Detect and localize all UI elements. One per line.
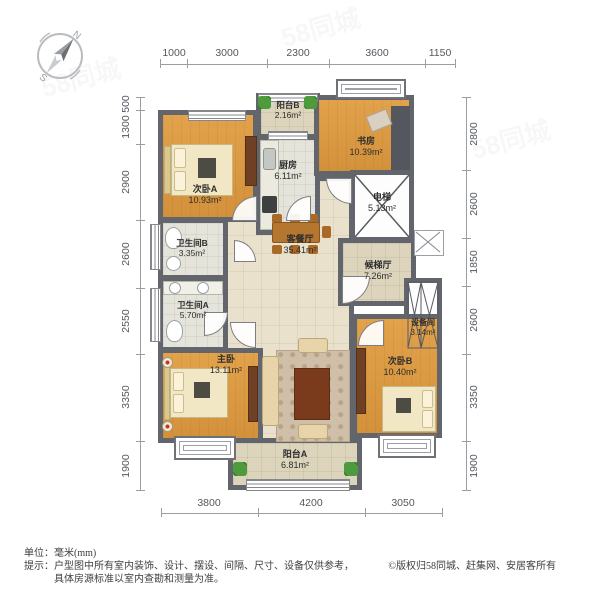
balcony-a-railing	[246, 479, 350, 491]
dim-left-3: 2900	[119, 156, 133, 208]
room-label-kitchen: 厨房6.11m²	[258, 160, 318, 182]
room-label-elevator: 电梯5.13m²	[352, 192, 412, 214]
toilet	[166, 320, 183, 342]
kitchen-window	[268, 131, 308, 140]
dim-right-5: 3350	[467, 371, 481, 423]
bathroom-sink	[166, 256, 181, 271]
room-label-balcony-b: 阳台B2.16m²	[256, 100, 320, 120]
master-bay-window	[174, 436, 236, 460]
blanket	[194, 382, 210, 398]
compass: N S	[28, 22, 92, 86]
nightstand	[162, 421, 173, 432]
bedroom-b-bay-window	[378, 434, 436, 458]
compass-south-label: S	[37, 72, 49, 85]
room-label-living-dining: 客餐厅35.41m²	[262, 234, 338, 256]
bathroom-sink	[169, 282, 181, 294]
dim-right-4: 2600	[467, 294, 481, 346]
bedroom-a-wardrobe	[245, 136, 257, 186]
room-label-bathroom-a: 卫生间A5.70m²	[160, 300, 226, 320]
dim-bottom-2: 4200	[281, 497, 341, 509]
dimension-right: 2800 2600 1850 2600 3350 1900	[462, 97, 492, 491]
study-bay-window	[336, 79, 406, 99]
pillow	[422, 390, 433, 408]
dimension-bottom: 3800 4200 3050	[161, 496, 443, 516]
dim-left-6: 3350	[119, 371, 133, 423]
pillow	[173, 394, 184, 413]
room-label-elevator-lobby: 候梯厅7.26m²	[340, 260, 416, 282]
dim-top-3: 2300	[268, 47, 328, 59]
blanket	[396, 398, 411, 413]
room-label-bathroom-b: 卫生间B3.35m²	[159, 238, 225, 258]
dim-top-2: 3000	[197, 47, 257, 59]
dimension-top: 1000 3000 2300 3600 1150	[160, 44, 456, 66]
kitchen-stove	[262, 196, 277, 213]
pillow	[173, 372, 184, 391]
dim-left-5: 2550	[119, 295, 133, 347]
room-label-equipment: 设备间3.14m²	[400, 318, 446, 337]
dim-right-2: 2600	[467, 178, 481, 230]
nightstand	[162, 357, 173, 368]
dim-bottom-3: 3050	[373, 497, 433, 509]
bedroom-a-window	[188, 110, 246, 121]
dim-right-1: 2800	[467, 108, 481, 160]
compass-needle-icon	[42, 35, 79, 77]
dim-right-3: 1850	[467, 236, 481, 288]
room-label-study: 书房10.39m²	[326, 136, 406, 158]
pillow	[174, 148, 186, 168]
dim-bottom-1: 3800	[179, 497, 239, 509]
lobby-window	[414, 230, 444, 256]
blanket	[198, 158, 216, 178]
dim-top-4: 3600	[347, 47, 407, 59]
coffee-table	[294, 368, 330, 420]
armchair	[298, 338, 328, 353]
dim-left-2: 1300	[119, 101, 133, 153]
room-label-master-bedroom: 主卧13.11m²	[186, 354, 266, 376]
dimension-left: 500 1300 2900 2600 2550 3350 1900	[120, 97, 146, 491]
pillow	[422, 410, 433, 428]
dim-right-6: 1900	[467, 440, 481, 492]
plant-icon	[344, 462, 358, 476]
bathroom-sink	[197, 282, 209, 294]
room-label-bedroom-b: 次卧B10.40m²	[360, 356, 440, 378]
plant-icon	[233, 462, 247, 476]
dim-left-7: 1900	[119, 440, 133, 492]
armchair	[298, 424, 328, 439]
room-label-balcony-a: 阳台A6.81m²	[255, 449, 335, 471]
dim-top-5: 1150	[410, 47, 470, 59]
room-label-bedroom-a: 次卧A10.93m²	[165, 184, 245, 206]
dim-left-4: 2600	[119, 228, 133, 280]
dim-top-1: 1000	[161, 47, 187, 59]
